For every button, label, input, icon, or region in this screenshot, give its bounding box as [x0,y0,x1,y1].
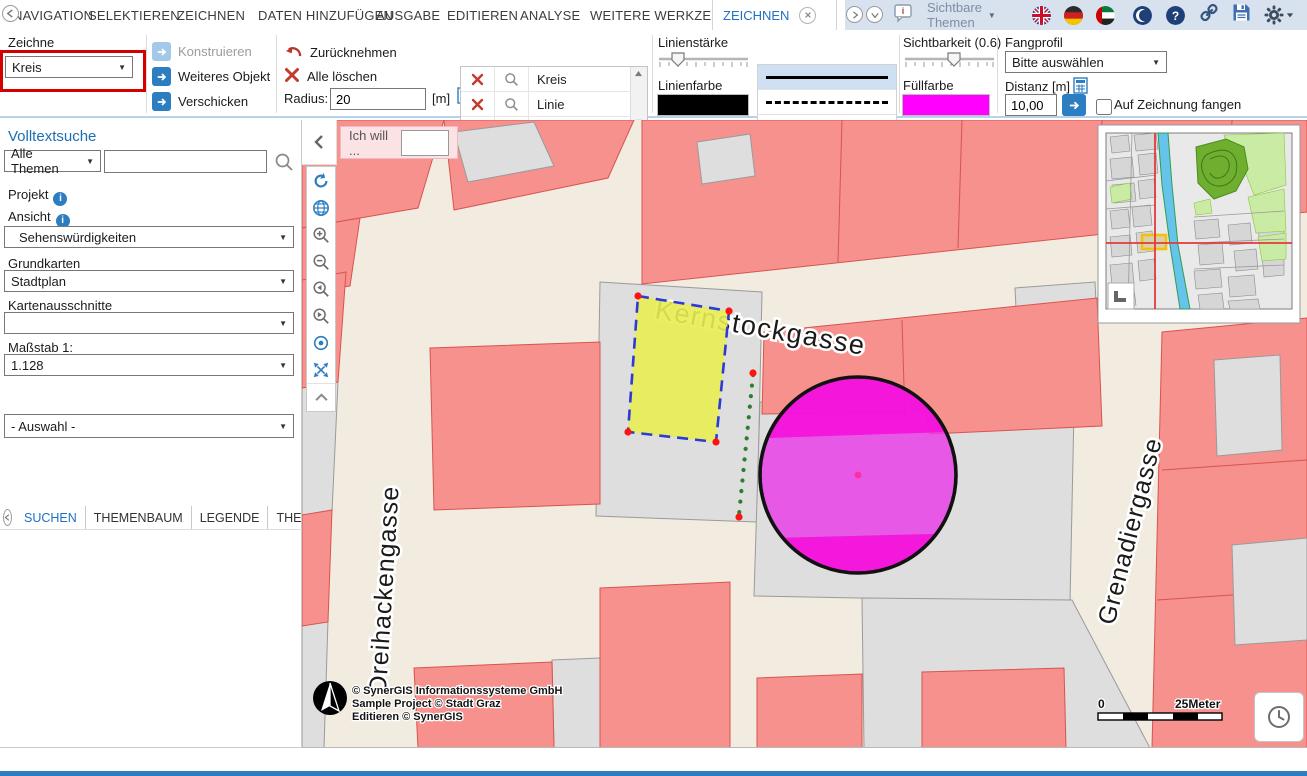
info-icon[interactable]: i [53,192,67,206]
volltextsuche-heading: Volltextsuche [8,128,96,145]
zoom-next-icon[interactable] [307,302,335,329]
fangprofil-select[interactable]: Bitte auswählen▼ [1005,51,1167,73]
globe-full-extent-icon[interactable] [307,194,335,221]
caret-down-icon: ▼ [279,277,287,286]
menu-daten-hinzufuegen[interactable]: DATEN HINZUFÜGEN [258,8,393,23]
linienfarbe-swatch[interactable] [657,94,749,116]
tab-zeichnen-label: ZEICHNEN [723,8,789,23]
grundkarten-select[interactable]: Stadtplan▼ [4,270,294,292]
ich-will-widget[interactable]: Ich will ... [340,126,458,159]
caret-down-icon: ▼ [279,361,287,370]
fuellfarbe-label: Füllfarbe [903,78,954,93]
link-icon[interactable] [1199,3,1219,28]
overview-map[interactable] [1098,125,1300,323]
auswahl-select[interactable]: - Auswahl -▼ [4,414,294,438]
ich-will-input[interactable] [401,130,449,156]
menu-analyse[interactable]: ANALYSE [520,8,580,23]
kartenausschnitte-select[interactable]: ▼ [4,312,294,334]
massstab-label: Maßstab 1: [8,340,73,355]
menu-navigation[interactable]: NAVIGATION [13,8,93,23]
distanz-input[interactable] [1005,94,1057,116]
zoom-previous-icon[interactable] [307,275,335,302]
sichtbarkeit-label: Sichtbarkeit (0.6) [903,35,1001,50]
zoom-to-object-icon[interactable] [495,92,529,116]
refresh-icon[interactable] [307,167,335,194]
delete-x-icon [284,67,300,86]
zoom-to-object-icon[interactable] [495,67,529,91]
top-right-strip: i Sichtbare Themen ▼ ? [845,0,1307,30]
arrow-right-icon [152,42,171,61]
list-item[interactable]: Linie [461,92,647,117]
bottom-accent-bar [0,771,1307,776]
konstruieren-button[interactable]: Konstruieren [152,42,252,61]
tab-list-dropdown-icon[interactable] [866,6,883,23]
menu-zeichnen[interactable]: ZEICHNEN [177,8,245,23]
delete-object-icon[interactable] [461,92,495,116]
menu-bar: NAVIGATION SELEKTIEREN ZEICHNEN DATEN HI… [0,0,1307,30]
overview-resize-icon[interactable] [1108,283,1134,309]
tab-zeichnen-active[interactable]: ZEICHNEN [712,0,837,30]
help-icon[interactable]: ? [1166,6,1185,25]
line-style-solid[interactable] [758,65,896,90]
alle-loeschen-button[interactable]: Alle löschen [284,67,377,86]
grundkarten-label: Grundkarten [8,256,80,271]
radius-unit-label: [m] [432,91,450,106]
zoom-out-icon[interactable] [307,248,335,275]
weiteres-objekt-button[interactable]: Weiteres Objekt [152,67,270,86]
line-style-dashed[interactable] [758,90,896,115]
history-clock-button[interactable] [1254,692,1304,742]
zoom-in-icon[interactable] [307,221,335,248]
caret-down-icon: ▼ [118,63,126,72]
ansicht-select[interactable]: Sehenswürdigkeiten▼ [4,226,294,248]
caret-down-icon: ▼ [279,233,287,242]
menu-editieren[interactable]: EDITIEREN [447,8,518,23]
distanz-label: Distanz [m] [1005,79,1070,94]
massstab-select[interactable]: 1.128▼ [4,354,294,376]
pan-full-extent-icon[interactable] [307,356,335,383]
visible-themes-bubble-icon[interactable]: i [893,3,915,28]
close-tab-icon[interactable] [799,7,816,24]
copyright-line: Editieren © SynerGIS [352,711,463,723]
visible-themes-caret-icon[interactable]: ▼ [988,11,996,20]
sidebar-tab-bar: SUCHEN THEMENBAUM LEGENDE THEM [0,506,302,530]
caret-down-icon: ▼ [279,319,287,328]
scroll-up-icon[interactable] [631,67,645,80]
tabs-scroll-left-icon[interactable] [3,509,12,526]
kartenausschnitte-label: Kartenausschnitte [8,298,112,313]
linienstaerke-slider[interactable] [656,50,751,81]
collapse-tools-chevron-icon[interactable] [307,383,335,411]
undo-icon [284,42,303,62]
snap-label: Auf Zeichnung fangen [1114,97,1241,112]
svg-text:?: ? [1172,9,1179,23]
caret-down-icon: ▼ [1152,58,1160,67]
copyright-line: Sample Project © Stadt Graz [352,698,501,710]
zeichne-select[interactable]: Kreis▼ [5,56,133,78]
tab-suchen[interactable]: SUCHEN [16,506,86,529]
ansicht-label: Ansichti [8,209,70,228]
fulltext-search-input[interactable] [104,150,267,173]
circle-center-vertex [855,472,862,479]
language-german-flag-icon[interactable] [1064,6,1083,25]
back-circle-icon[interactable] [2,5,19,22]
night-mode-crescent-icon[interactable] [1133,6,1152,25]
settings-gear-icon[interactable] [1264,5,1294,25]
sichtbarkeit-slider[interactable] [902,50,997,81]
caret-down-icon: ▼ [279,422,287,431]
projekt-label: Projekti [8,187,67,206]
copyright-line: © SynerGIS Informationssysteme GmbH [352,685,562,697]
menu-ausgabe[interactable]: AUSGABE [376,8,440,23]
ich-will-label: Ich will ... [349,128,394,158]
svg-text:i: i [902,6,905,16]
snap-checkbox[interactable] [1096,99,1112,115]
menu-selektieren[interactable]: SELEKTIEREN [88,8,180,23]
language-english-flag-icon[interactable] [1032,6,1051,25]
caret-down-icon: ▼ [86,157,94,166]
tab-legende[interactable]: LEGENDE [192,506,269,529]
linienstaerke-label: Linienstärke [658,35,728,50]
fangprofil-label: Fangprofil [1005,35,1063,50]
center-map-icon[interactable] [307,329,335,356]
linienfarbe-label: Linienfarbe [658,78,722,93]
map-viewport[interactable]: Kernstockgasse Dreihackengasse Grenadier… [302,120,1307,748]
zuruecknehmen-button[interactable]: Zurücknehmen [284,42,397,62]
arrow-right-icon [152,92,171,111]
drawn-polygon-yellow[interactable] [624,292,732,445]
list-item[interactable]: Kreis [461,67,647,92]
apply-distance-button[interactable] [1062,94,1086,116]
application-window: NAVIGATION SELEKTIEREN ZEICHNEN DATEN HI… [0,0,1307,776]
zeichne-label: Zeichne [8,35,54,50]
save-icon[interactable] [1232,3,1251,27]
fuellfarbe-swatch[interactable] [902,94,990,116]
overview-extent-marker [1142,235,1166,249]
search-icon[interactable] [274,152,294,177]
theme-filter-select[interactable]: Alle Themen▼ [4,150,101,172]
sidebar: Volltextsuche Alle Themen▼ Projekti Ansi… [0,120,302,748]
tab-themenbaum[interactable]: THEMENBAUM [86,506,192,529]
radius-input[interactable] [330,88,426,110]
radius-label: Radius: [284,91,328,106]
verschicken-button[interactable]: Verschicken [152,92,248,111]
tab-themen-clipped[interactable]: THEM [268,506,302,529]
sidebar-collapse-button[interactable] [302,120,337,165]
delete-object-icon[interactable] [461,67,495,91]
map-tool-stack [306,166,336,412]
map-canvas[interactable]: Kernstockgasse Dreihackengasse Grenadier… [302,120,1307,748]
tab-scroll-right-icon[interactable] [846,6,863,23]
language-arabic-flag-icon[interactable] [1096,6,1115,25]
scale-zero-label: 0 [1098,697,1105,711]
scale-distance-label: 25Meter [1175,697,1221,711]
drawing-toolbar: Zeichne Kreis▼ Konstruieren Weiteres Obj… [0,30,1307,118]
arrow-right-icon [152,67,171,86]
visible-themes-label[interactable]: Sichtbare Themen [927,0,982,30]
north-arrow-icon [313,681,347,715]
